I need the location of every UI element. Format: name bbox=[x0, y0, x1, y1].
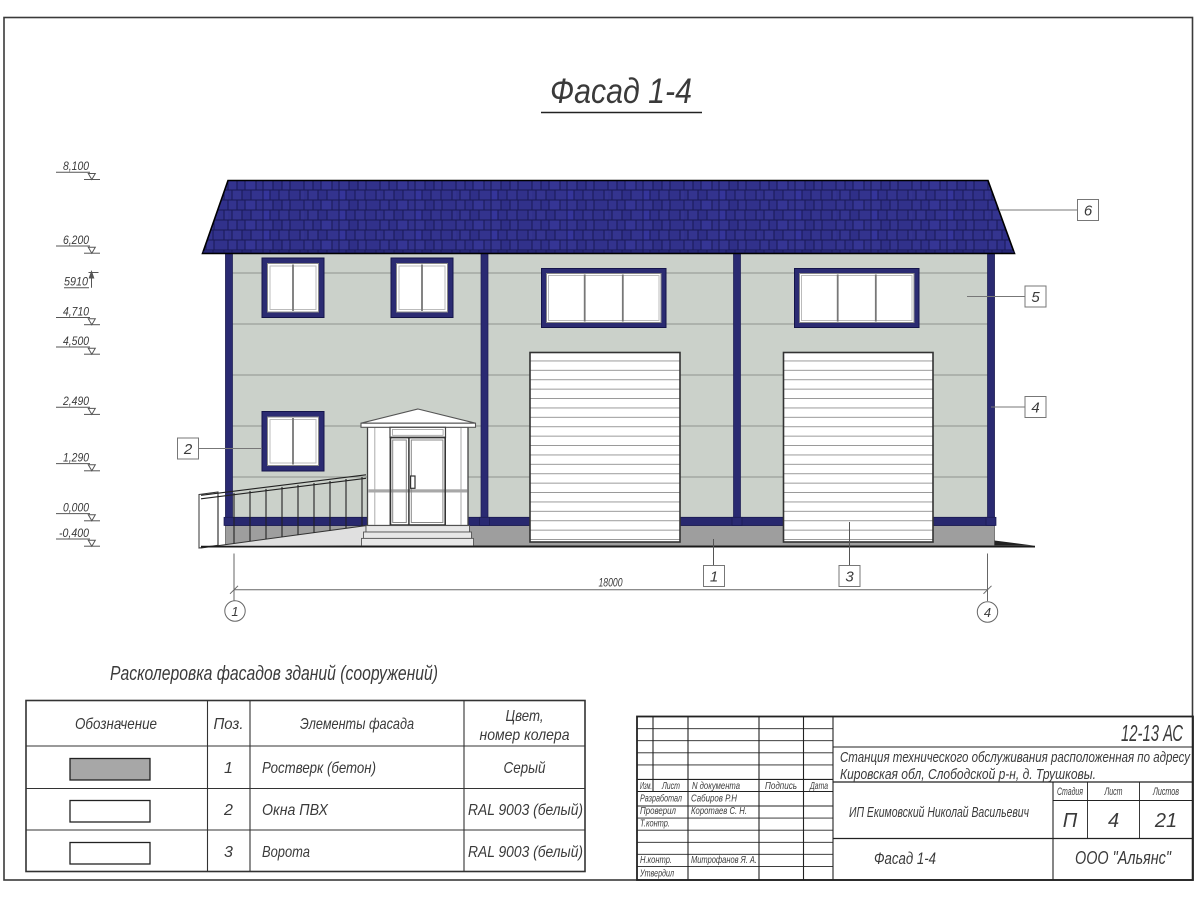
svg-text:-0,400: -0,400 bbox=[59, 526, 89, 540]
svg-text:Лист: Лист bbox=[1104, 786, 1123, 798]
svg-text:2: 2 bbox=[223, 802, 233, 819]
svg-text:Коротаев С. Н.: Коротаев С. Н. bbox=[691, 805, 747, 817]
svg-text:Ворота: Ворота bbox=[262, 844, 310, 861]
svg-text:Проверил: Проверил bbox=[640, 805, 676, 817]
svg-text:Элементы фасада: Элементы фасада bbox=[300, 716, 414, 733]
svg-text:21: 21 bbox=[1154, 810, 1177, 832]
svg-text:3: 3 bbox=[845, 569, 854, 586]
svg-text:5: 5 bbox=[1031, 289, 1040, 306]
svg-text:5910: 5910 bbox=[64, 275, 88, 289]
svg-text:ООО "Альянс": ООО "Альянс" bbox=[1075, 848, 1172, 868]
svg-text:Серый: Серый bbox=[504, 760, 546, 777]
svg-text:12-13 АС: 12-13 АС bbox=[1121, 720, 1183, 746]
svg-text:RAL 9003 (белый): RAL 9003 (белый) bbox=[468, 802, 583, 819]
svg-text:Лист: Лист bbox=[661, 780, 680, 792]
svg-text:1: 1 bbox=[224, 760, 233, 777]
svg-text:2,490: 2,490 bbox=[62, 394, 89, 408]
svg-text:Подпись: Подпись bbox=[765, 780, 797, 792]
svg-text:Листов: Листов bbox=[1152, 786, 1179, 798]
svg-text:4: 4 bbox=[1031, 400, 1039, 417]
svg-text:6: 6 bbox=[1084, 203, 1093, 220]
svg-text:Н.контр.: Н.контр. bbox=[640, 854, 672, 866]
svg-text:18000: 18000 bbox=[599, 576, 623, 590]
svg-text:Митрофанов Я. А.: Митрофанов Я. А. bbox=[691, 854, 757, 866]
svg-text:Окна ПВХ: Окна ПВХ bbox=[262, 802, 329, 819]
svg-text:Поз.: Поз. bbox=[214, 716, 244, 733]
svg-text:Расколеровка фасадов зданий (с: Расколеровка фасадов зданий (сооружений) bbox=[110, 663, 438, 685]
svg-text:Фасад 1-4: Фасад 1-4 bbox=[550, 72, 692, 111]
svg-text:Цвет,: Цвет, bbox=[506, 708, 544, 725]
svg-text:4,500: 4,500 bbox=[63, 334, 89, 348]
svg-text:Кировская обл, Слободской р-н,: Кировская обл, Слободской р-н, д. Трушко… bbox=[840, 767, 1096, 783]
svg-text:RAL 9003 (белый): RAL 9003 (белый) bbox=[468, 844, 583, 861]
svg-text:6,200: 6,200 bbox=[63, 233, 89, 247]
svg-text:Утвердил: Утвердил bbox=[639, 868, 674, 880]
svg-text:Дата: Дата bbox=[809, 780, 828, 792]
svg-text:номер колера: номер колера bbox=[480, 727, 570, 744]
svg-text:8,100: 8,100 bbox=[63, 159, 89, 173]
svg-text:2: 2 bbox=[183, 441, 193, 458]
svg-text:1,290: 1,290 bbox=[63, 450, 89, 464]
svg-text:N документа: N документа bbox=[692, 780, 740, 792]
svg-text:Т.контр.: Т.контр. bbox=[640, 818, 670, 830]
svg-text:Фасад 1-4: Фасад 1-4 bbox=[874, 849, 936, 868]
svg-text:П: П bbox=[1063, 810, 1078, 832]
svg-text:1: 1 bbox=[231, 604, 238, 619]
svg-text:Стадия: Стадия bbox=[1057, 786, 1083, 798]
svg-text:ИП Екимовский Николай Васильев: ИП Екимовский Николай Васильевич bbox=[849, 804, 1029, 821]
svg-text:3: 3 bbox=[224, 844, 233, 861]
svg-text:4,710: 4,710 bbox=[63, 304, 89, 318]
svg-text:1: 1 bbox=[710, 569, 718, 586]
svg-text:Станция технического обслужива: Станция технического обслуживания распол… bbox=[840, 750, 1191, 766]
svg-text:Разработал: Разработал bbox=[640, 793, 682, 805]
svg-text:0,000: 0,000 bbox=[63, 500, 89, 514]
svg-text:4: 4 bbox=[984, 605, 991, 620]
svg-text:Сабиров Р.Н: Сабиров Р.Н bbox=[691, 793, 737, 805]
svg-text:4: 4 bbox=[1108, 810, 1119, 832]
svg-text:Обозначение: Обозначение bbox=[75, 716, 157, 733]
svg-text:Изм.: Изм. bbox=[640, 780, 652, 792]
svg-text:Ростверк (бетон): Ростверк (бетон) bbox=[262, 760, 376, 777]
